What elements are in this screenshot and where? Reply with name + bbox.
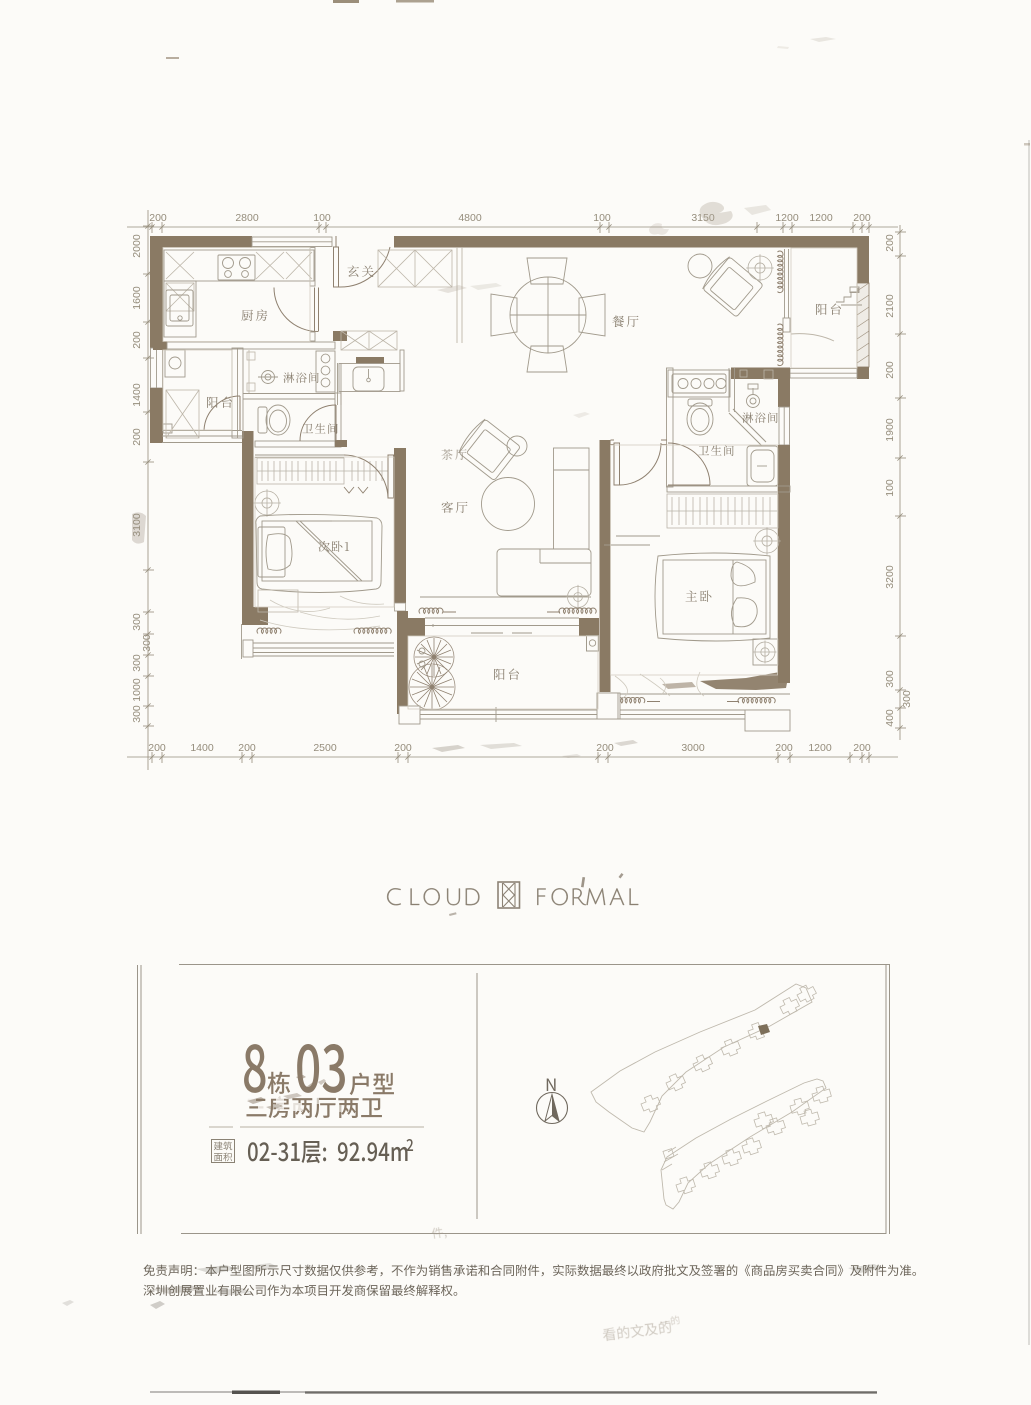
svg-text:2800: 2800 bbox=[235, 212, 259, 224]
svg-text:3200: 3200 bbox=[884, 565, 896, 589]
svg-text:200: 200 bbox=[596, 742, 614, 754]
svg-text:1400: 1400 bbox=[131, 383, 143, 407]
svg-text:200: 200 bbox=[238, 742, 256, 754]
svg-text:200: 200 bbox=[853, 212, 871, 224]
svg-text:200: 200 bbox=[131, 428, 143, 446]
svg-text:4800: 4800 bbox=[458, 212, 482, 224]
svg-text:200: 200 bbox=[775, 742, 793, 754]
svg-text:200: 200 bbox=[884, 234, 896, 252]
svg-text:3100: 3100 bbox=[131, 513, 143, 537]
svg-text:100: 100 bbox=[884, 479, 896, 497]
svg-text:3000: 3000 bbox=[681, 742, 705, 754]
svg-text:200: 200 bbox=[394, 742, 412, 754]
svg-text:200: 200 bbox=[149, 212, 167, 224]
svg-text:300: 300 bbox=[141, 634, 153, 652]
svg-text:300: 300 bbox=[884, 670, 896, 688]
svg-text:2000: 2000 bbox=[131, 234, 143, 258]
svg-text:200: 200 bbox=[148, 742, 166, 754]
svg-text:400: 400 bbox=[884, 709, 896, 727]
svg-text:1000: 1000 bbox=[131, 678, 143, 702]
svg-text:300: 300 bbox=[901, 690, 913, 708]
svg-text:100: 100 bbox=[593, 212, 611, 224]
svg-text:200: 200 bbox=[131, 331, 143, 349]
svg-text:1600: 1600 bbox=[131, 286, 143, 310]
svg-text:200: 200 bbox=[884, 361, 896, 379]
svg-text:200: 200 bbox=[853, 742, 871, 754]
svg-text:100: 100 bbox=[313, 212, 331, 224]
svg-text:1200: 1200 bbox=[808, 742, 832, 754]
svg-text:300: 300 bbox=[131, 613, 143, 631]
svg-text:1200: 1200 bbox=[775, 212, 799, 224]
svg-text:1400: 1400 bbox=[190, 742, 214, 754]
svg-text:300: 300 bbox=[131, 705, 143, 723]
svg-text:1900: 1900 bbox=[884, 418, 896, 442]
svg-text:300: 300 bbox=[131, 654, 143, 672]
svg-text:2100: 2100 bbox=[884, 294, 896, 318]
svg-text:2500: 2500 bbox=[313, 742, 337, 754]
svg-text:1200: 1200 bbox=[809, 212, 833, 224]
